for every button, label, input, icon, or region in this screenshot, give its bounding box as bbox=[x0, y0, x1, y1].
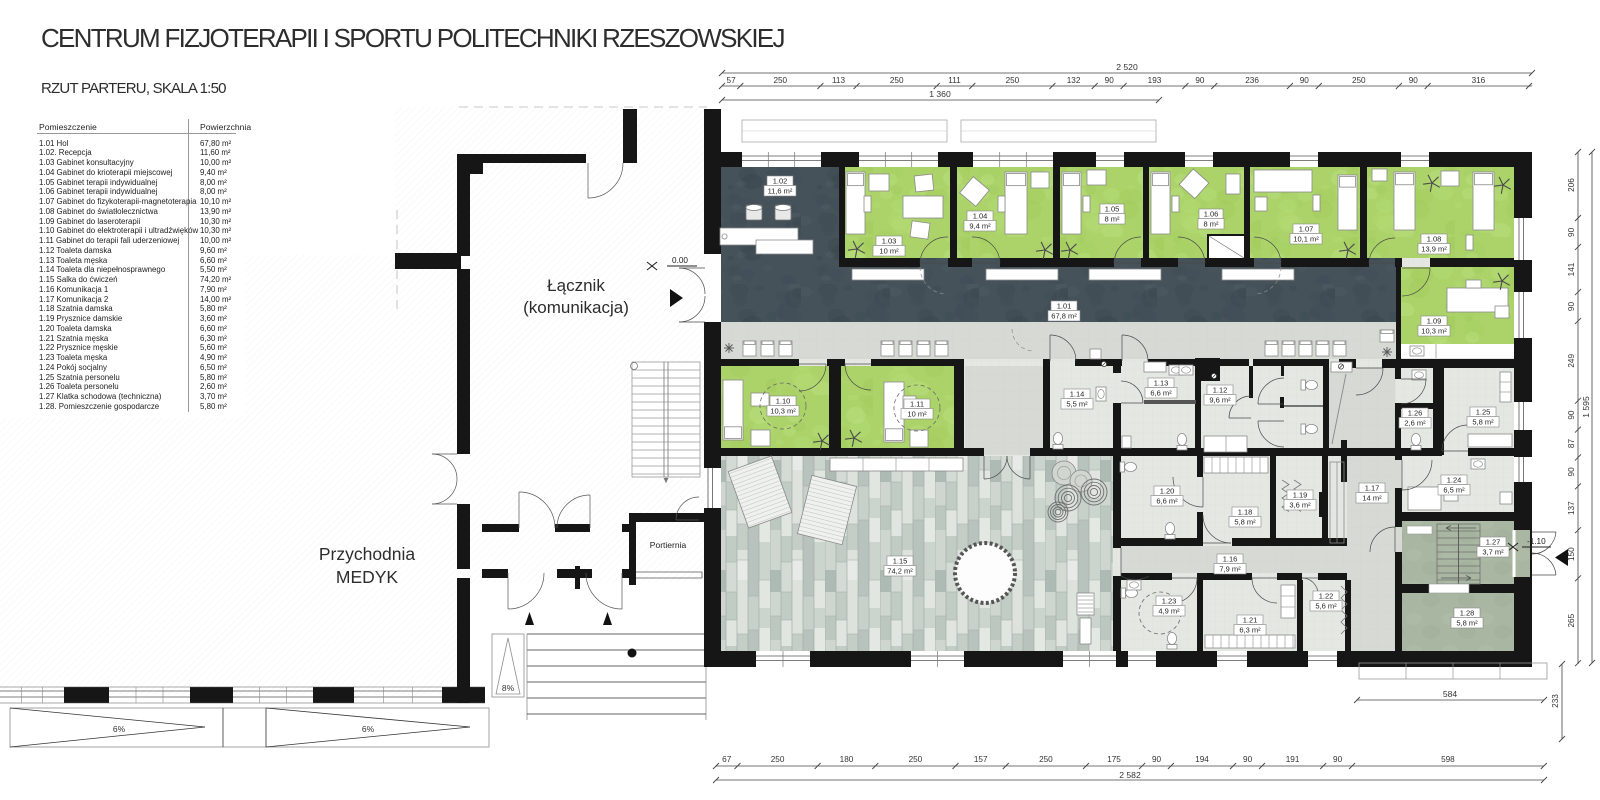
svg-text:MEDYK: MEDYK bbox=[336, 567, 399, 587]
svg-text:3,7 m²: 3,7 m² bbox=[1482, 548, 1504, 557]
svg-text:250: 250 bbox=[890, 76, 904, 85]
svg-text:1.09: 1.09 bbox=[1427, 317, 1442, 326]
svg-text:250: 250 bbox=[1006, 76, 1020, 85]
svg-text:5,5 m²: 5,5 m² bbox=[1066, 400, 1088, 409]
svg-text:1.22: 1.22 bbox=[1319, 592, 1334, 601]
svg-text:1.11: 1.11 bbox=[910, 400, 924, 409]
svg-text:6,5 m²: 6,5 m² bbox=[1443, 486, 1465, 495]
svg-text:90: 90 bbox=[1333, 755, 1343, 764]
svg-text:1.21: 1.21 bbox=[1243, 616, 1258, 625]
svg-text:1.20: 1.20 bbox=[1160, 487, 1175, 496]
svg-text:250: 250 bbox=[909, 755, 923, 764]
svg-text:90: 90 bbox=[1409, 76, 1419, 85]
svg-text:1.14: 1.14 bbox=[1070, 390, 1085, 399]
svg-text:1.28: 1.28 bbox=[1460, 609, 1475, 618]
svg-text:1.05: 1.05 bbox=[1105, 205, 1120, 214]
svg-text:1 595: 1 595 bbox=[1581, 396, 1591, 418]
svg-text:250: 250 bbox=[771, 755, 785, 764]
svg-text:11,6 m²: 11,6 m² bbox=[768, 187, 793, 196]
svg-text:584: 584 bbox=[1443, 689, 1458, 699]
svg-text:265: 265 bbox=[1567, 613, 1576, 627]
svg-text:90: 90 bbox=[1567, 410, 1576, 420]
svg-text:10,3 m²: 10,3 m² bbox=[1421, 327, 1447, 336]
svg-text:316: 316 bbox=[1472, 76, 1486, 85]
svg-text:1.25: 1.25 bbox=[1476, 408, 1491, 417]
svg-text:194: 194 bbox=[1195, 755, 1209, 764]
svg-text:6%: 6% bbox=[113, 724, 126, 734]
svg-text:1.01: 1.01 bbox=[1057, 302, 1072, 311]
svg-text:250: 250 bbox=[773, 76, 787, 85]
svg-text:249: 249 bbox=[1567, 354, 1576, 368]
svg-text:90: 90 bbox=[1567, 227, 1576, 237]
svg-text:1.15: 1.15 bbox=[893, 557, 908, 566]
svg-text:90: 90 bbox=[1567, 467, 1576, 477]
svg-text:13,9 m²: 13,9 m² bbox=[1421, 245, 1447, 254]
svg-text:5,8 m²: 5,8 m² bbox=[1456, 619, 1478, 628]
svg-text:6,6 m²: 6,6 m² bbox=[1156, 497, 1178, 506]
svg-text:9,6 m²: 9,6 m² bbox=[1209, 396, 1231, 405]
svg-text:67,8 m²: 67,8 m² bbox=[1051, 312, 1077, 321]
svg-text:1.26: 1.26 bbox=[1408, 409, 1423, 418]
svg-text:598: 598 bbox=[1441, 755, 1455, 764]
svg-text:8 m²: 8 m² bbox=[1105, 215, 1121, 224]
svg-text:90: 90 bbox=[1300, 76, 1310, 85]
svg-text:175: 175 bbox=[1107, 755, 1121, 764]
svg-text:74,2 m²: 74,2 m² bbox=[887, 567, 913, 576]
svg-text:1.07: 1.07 bbox=[1299, 225, 1314, 234]
svg-text:90: 90 bbox=[1243, 755, 1253, 764]
svg-text:6%: 6% bbox=[362, 724, 375, 734]
svg-text:5,8 m²: 5,8 m² bbox=[1472, 418, 1494, 427]
svg-text:8%: 8% bbox=[502, 683, 515, 693]
svg-text:157: 157 bbox=[974, 755, 988, 764]
svg-text:1.27: 1.27 bbox=[1486, 538, 1501, 547]
svg-text:1.16: 1.16 bbox=[1223, 555, 1238, 564]
svg-text:Przychodnia: Przychodnia bbox=[319, 544, 416, 564]
svg-text:1.24: 1.24 bbox=[1447, 476, 1462, 485]
svg-text:137: 137 bbox=[1567, 501, 1576, 515]
svg-text:132: 132 bbox=[1067, 76, 1081, 85]
svg-text:1.02: 1.02 bbox=[773, 177, 788, 186]
svg-text:-1.10: -1.10 bbox=[1527, 537, 1546, 546]
svg-text:1.19: 1.19 bbox=[1293, 491, 1308, 500]
svg-text:8 m²: 8 m² bbox=[1204, 220, 1220, 229]
svg-text:Portiernia: Portiernia bbox=[650, 540, 687, 550]
svg-text:233: 233 bbox=[1551, 694, 1560, 708]
svg-text:10,1 m²: 10,1 m² bbox=[1293, 235, 1319, 244]
svg-text:90: 90 bbox=[1195, 76, 1205, 85]
svg-text:1.12: 1.12 bbox=[1213, 386, 1228, 395]
svg-text:5,6 m²: 5,6 m² bbox=[1315, 602, 1337, 611]
svg-text:191: 191 bbox=[1286, 755, 1300, 764]
svg-text:141: 141 bbox=[1567, 262, 1576, 276]
svg-text:1.17: 1.17 bbox=[1365, 484, 1380, 493]
svg-text:6,6 m²: 6,6 m² bbox=[1150, 389, 1172, 398]
svg-text:2 582: 2 582 bbox=[1119, 770, 1141, 780]
svg-text:7,9 m²: 7,9 m² bbox=[1219, 565, 1241, 574]
svg-text:206: 206 bbox=[1567, 178, 1576, 192]
svg-text:87: 87 bbox=[1567, 439, 1576, 449]
svg-text:113: 113 bbox=[832, 76, 845, 85]
svg-text:250: 250 bbox=[1352, 76, 1366, 85]
svg-text:57: 57 bbox=[727, 76, 737, 85]
svg-text:250: 250 bbox=[1039, 755, 1053, 764]
svg-text:(komunikacja): (komunikacja) bbox=[523, 298, 629, 317]
svg-text:1.23: 1.23 bbox=[1162, 597, 1177, 606]
svg-text:2 520: 2 520 bbox=[1116, 62, 1138, 72]
svg-text:1.03: 1.03 bbox=[882, 237, 897, 246]
svg-text:1.18: 1.18 bbox=[1238, 508, 1253, 517]
svg-text:1.06: 1.06 bbox=[1204, 210, 1219, 219]
svg-text:14 m²: 14 m² bbox=[1362, 494, 1382, 503]
svg-text:90: 90 bbox=[1105, 76, 1115, 85]
svg-text:90: 90 bbox=[1567, 302, 1576, 312]
svg-text:10,3 m²: 10,3 m² bbox=[770, 407, 796, 416]
svg-text:1.04: 1.04 bbox=[973, 212, 988, 221]
svg-text:2,6 m²: 2,6 m² bbox=[1404, 419, 1426, 428]
svg-text:5,8 m²: 5,8 m² bbox=[1234, 518, 1256, 527]
svg-text:67: 67 bbox=[722, 755, 732, 764]
svg-text:10 m²: 10 m² bbox=[907, 410, 927, 419]
svg-text:150: 150 bbox=[1567, 547, 1576, 561]
svg-text:9,4 m²: 9,4 m² bbox=[969, 222, 991, 231]
svg-text:236: 236 bbox=[1245, 76, 1259, 85]
svg-text:1.08: 1.08 bbox=[1427, 235, 1442, 244]
svg-text:6,3 m²: 6,3 m² bbox=[1239, 626, 1261, 635]
svg-text:4,9 m²: 4,9 m² bbox=[1158, 607, 1180, 616]
svg-text:1.13: 1.13 bbox=[1154, 379, 1169, 388]
svg-text:0.00: 0.00 bbox=[672, 256, 688, 265]
svg-text:3,6 m²: 3,6 m² bbox=[1289, 501, 1311, 510]
svg-text:90: 90 bbox=[1152, 755, 1162, 764]
svg-text:193: 193 bbox=[1148, 76, 1162, 85]
svg-text:1 360: 1 360 bbox=[929, 89, 951, 99]
svg-text:180: 180 bbox=[840, 755, 854, 764]
svg-text:10 m²: 10 m² bbox=[879, 247, 899, 256]
svg-text:111: 111 bbox=[948, 76, 961, 85]
svg-text:1.10: 1.10 bbox=[776, 397, 791, 406]
svg-text:Łącznik: Łącznik bbox=[547, 276, 605, 295]
